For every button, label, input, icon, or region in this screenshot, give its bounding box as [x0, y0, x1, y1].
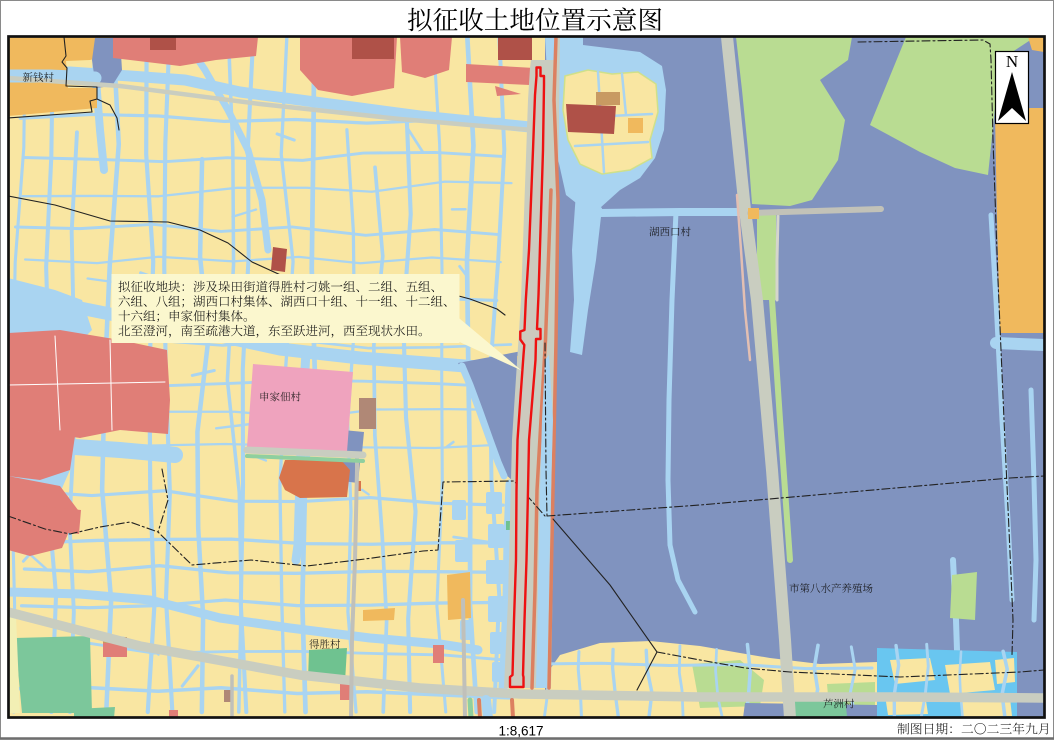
svg-text:N: N: [1006, 52, 1018, 71]
svg-text:1:8,617: 1:8,617: [498, 724, 543, 739]
